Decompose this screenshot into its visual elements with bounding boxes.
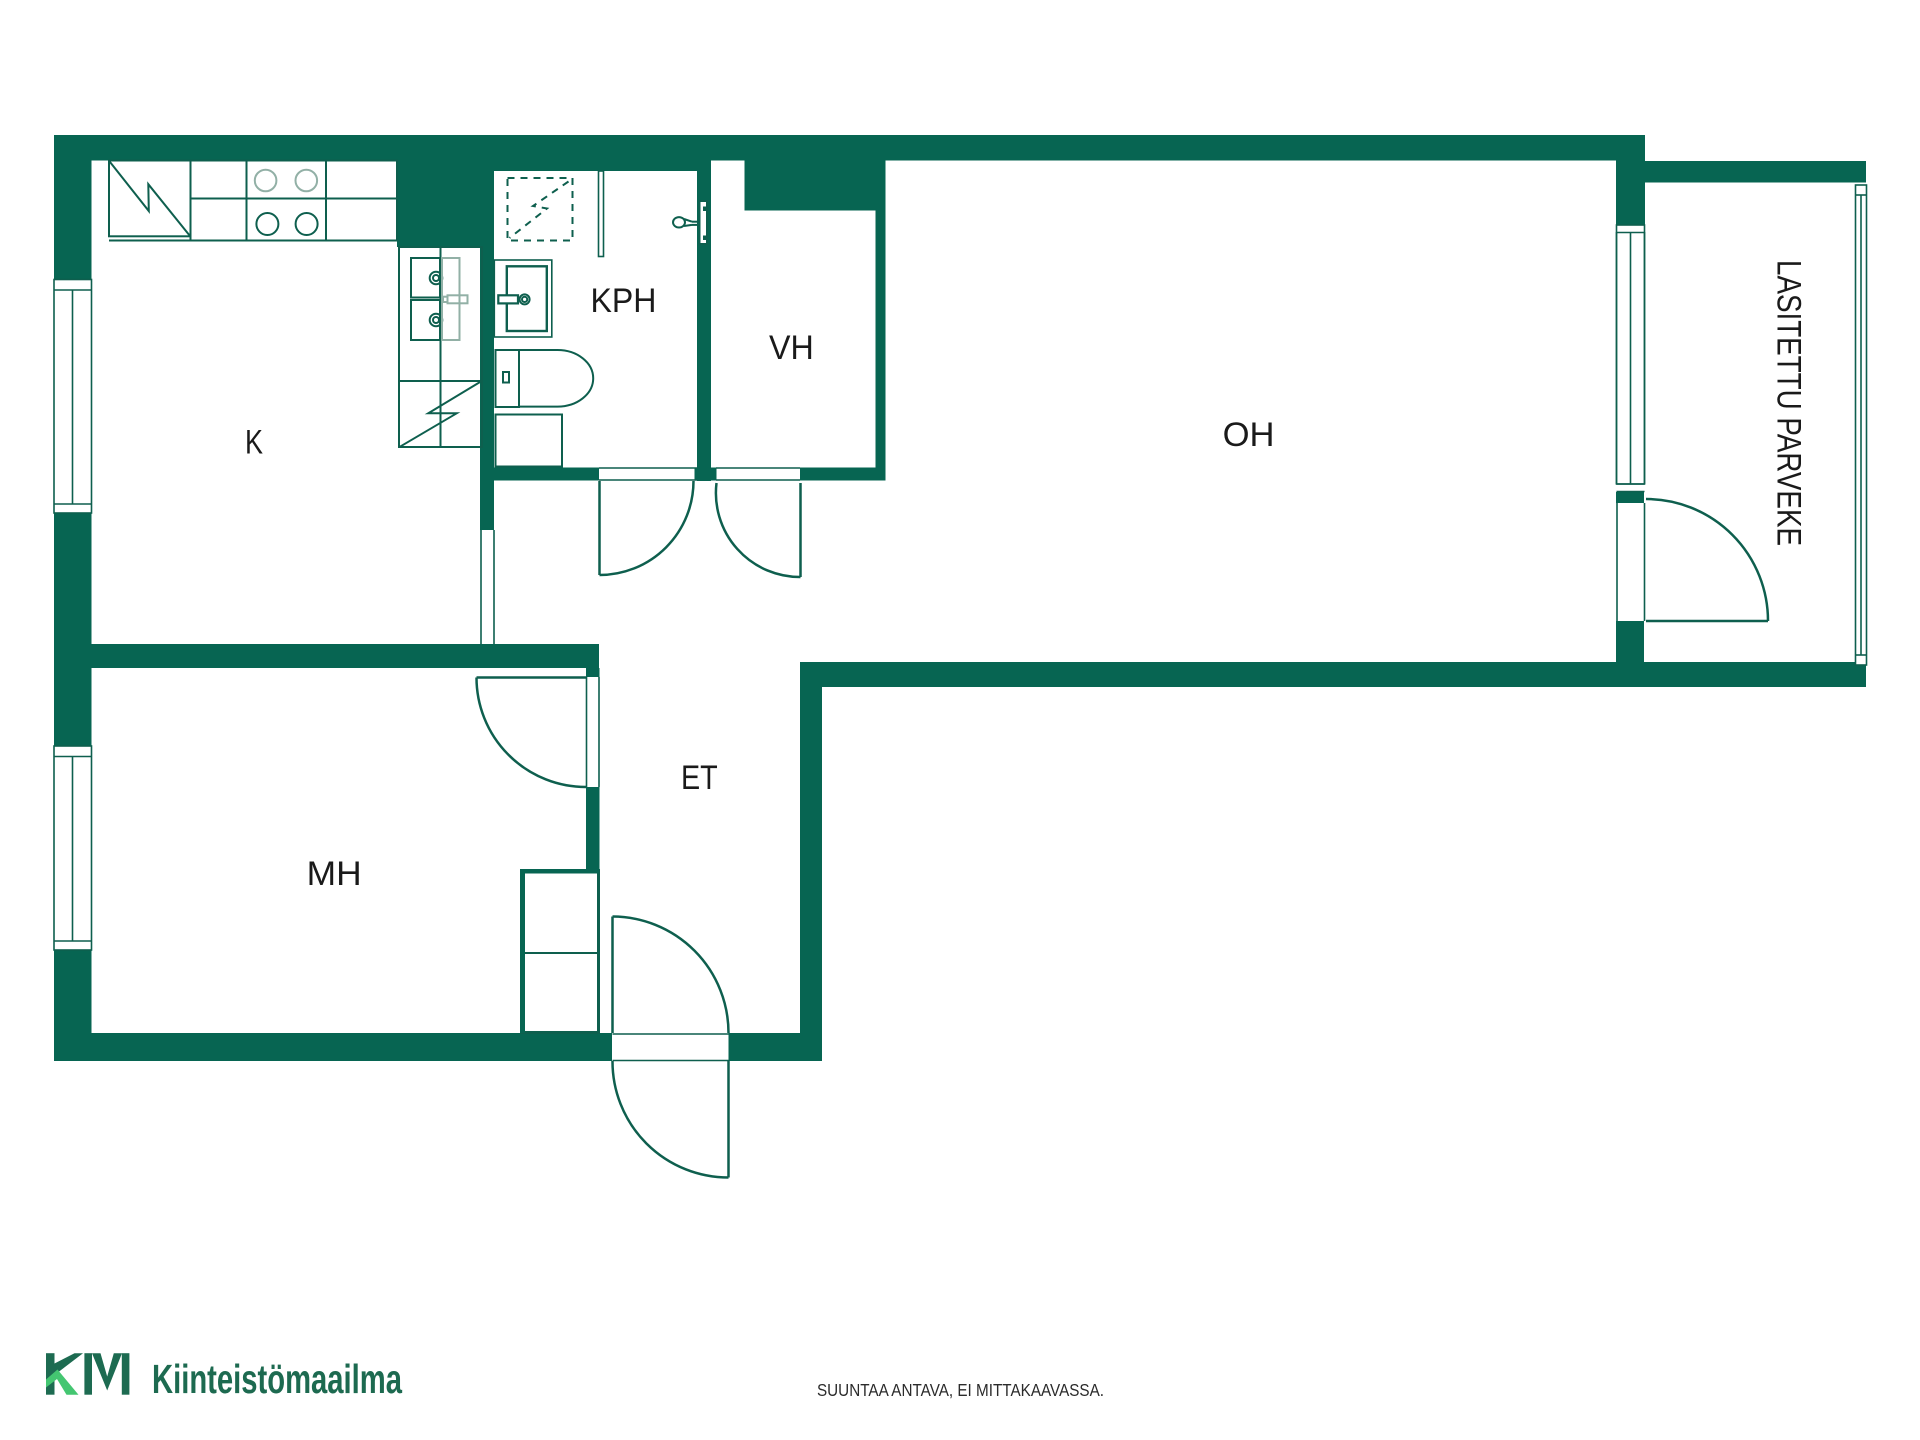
svg-text:VH: VH: [769, 329, 814, 367]
svg-text:MH: MH: [307, 855, 362, 893]
svg-text:SUUNTAA ANTAVA, EI MITTAKAAVAS: SUUNTAA ANTAVA, EI MITTAKAAVASSA.: [817, 1380, 1104, 1400]
svg-text:Kiinteistömaailma: Kiinteistömaailma: [152, 1356, 403, 1402]
svg-text:K: K: [245, 424, 263, 462]
svg-text:KPH: KPH: [591, 282, 657, 320]
svg-text:LASITETTU PARVEKE: LASITETTU PARVEKE: [1770, 260, 1808, 546]
svg-text:OH: OH: [1223, 416, 1275, 454]
svg-text:ET: ET: [681, 759, 718, 797]
